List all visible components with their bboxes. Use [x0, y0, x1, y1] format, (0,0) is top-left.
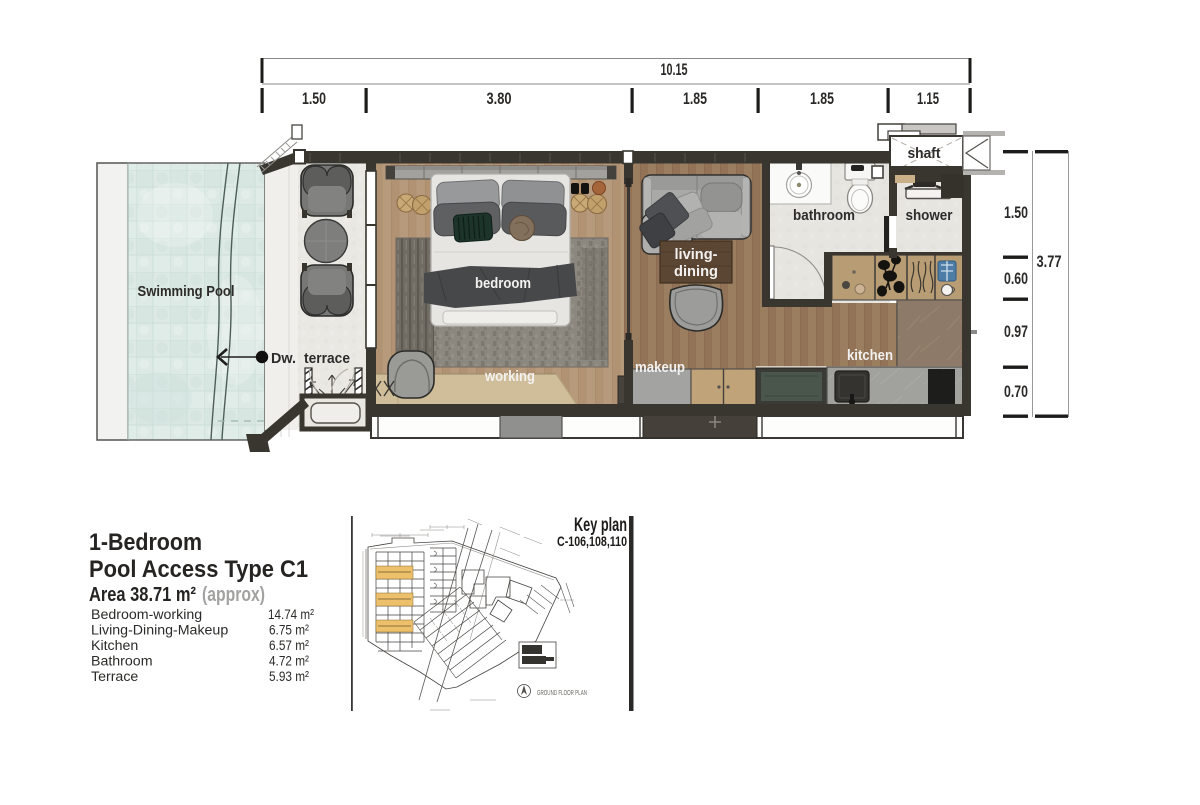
- svg-text:10.15: 10.15: [661, 60, 688, 79]
- svg-text:Terrace: Terrace: [91, 669, 138, 685]
- svg-text:0.60: 0.60: [1004, 269, 1028, 288]
- svg-text:1-Bedroom: 1-Bedroom: [89, 529, 202, 556]
- svg-text:Kitchen: Kitchen: [91, 638, 138, 654]
- svg-text:living-: living-: [675, 246, 718, 263]
- svg-text:bedroom: bedroom: [475, 275, 531, 292]
- svg-text:dining: dining: [674, 263, 718, 280]
- svg-text:6.75 m²: 6.75 m²: [269, 623, 309, 639]
- svg-text:6.57 m²: 6.57 m²: [269, 638, 309, 654]
- svg-text:0.97: 0.97: [1004, 322, 1028, 341]
- svg-text:5.93 m²: 5.93 m²: [269, 669, 309, 685]
- svg-text:kitchen: kitchen: [847, 347, 893, 364]
- svg-text:Area 38.71 m²: Area 38.71 m²: [89, 584, 196, 606]
- svg-text:1.85: 1.85: [810, 89, 834, 108]
- svg-text:4.72 m²: 4.72 m²: [269, 654, 309, 670]
- svg-text:C-106,108,110: C-106,108,110: [557, 533, 627, 549]
- svg-text:Swimming Pool: Swimming Pool: [138, 283, 235, 300]
- svg-text:Bathroom: Bathroom: [91, 654, 153, 670]
- svg-text:bathroom: bathroom: [793, 207, 855, 224]
- svg-text:1.50: 1.50: [302, 89, 326, 108]
- svg-text:1.85: 1.85: [683, 89, 707, 108]
- svg-text:3.77: 3.77: [1037, 252, 1062, 271]
- svg-text:terrace: terrace: [304, 350, 350, 367]
- svg-text:1.50: 1.50: [1004, 203, 1028, 222]
- svg-text:makeup: makeup: [635, 359, 685, 376]
- svg-text:0.70: 0.70: [1004, 382, 1028, 401]
- svg-text:(approx): (approx): [202, 584, 265, 606]
- svg-text:3.80: 3.80: [487, 89, 512, 108]
- svg-text:working: working: [484, 368, 535, 385]
- svg-text:Living-Dining-Makeup: Living-Dining-Makeup: [91, 623, 228, 639]
- svg-text:Bedroom-working: Bedroom-working: [91, 607, 202, 623]
- svg-text:shower: shower: [906, 207, 953, 224]
- svg-text:Pool Access Type C1: Pool Access Type C1: [89, 556, 308, 583]
- svg-text:1.15: 1.15: [917, 89, 939, 108]
- svg-text:GROUND FLOOR PLAN: GROUND FLOOR PLAN: [537, 690, 587, 697]
- svg-text:Dw.: Dw.: [271, 350, 296, 367]
- svg-text:14.74 m²: 14.74 m²: [268, 607, 314, 623]
- svg-text:shaft: shaft: [908, 145, 941, 162]
